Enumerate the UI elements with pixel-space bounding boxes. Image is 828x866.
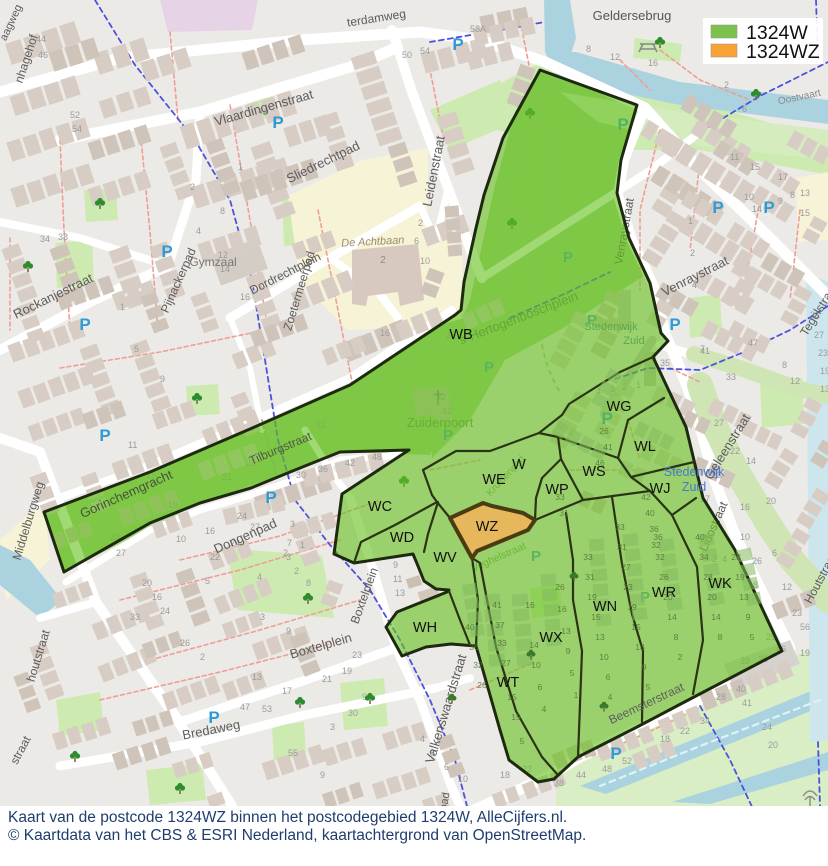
svg-text:27: 27: [501, 658, 511, 668]
svg-text:10: 10: [599, 652, 609, 662]
svg-text:19: 19: [735, 572, 745, 582]
svg-text:2: 2: [724, 80, 729, 90]
svg-text:20: 20: [707, 592, 717, 602]
svg-text:P: P: [712, 198, 723, 217]
svg-text:P: P: [99, 426, 110, 445]
svg-text:28: 28: [716, 692, 726, 702]
svg-text:24: 24: [762, 722, 772, 732]
svg-text:6: 6: [742, 104, 747, 114]
svg-text:7: 7: [287, 538, 292, 548]
svg-text:27: 27: [814, 330, 824, 340]
svg-text:34: 34: [700, 716, 710, 726]
svg-text:9: 9: [393, 560, 398, 570]
svg-text:24: 24: [237, 511, 247, 521]
svg-text:8: 8: [790, 190, 795, 200]
svg-text:13: 13: [800, 188, 810, 198]
svg-text:3: 3: [330, 722, 335, 732]
svg-text:19: 19: [627, 602, 637, 612]
svg-text:54: 54: [72, 124, 82, 134]
svg-text:19: 19: [820, 366, 828, 376]
svg-text:15: 15: [511, 712, 521, 722]
svg-text:2: 2: [380, 255, 386, 266]
svg-text:8: 8: [718, 632, 723, 642]
svg-text:10: 10: [740, 532, 750, 542]
svg-text:30: 30: [296, 470, 306, 480]
svg-text:5: 5: [750, 632, 755, 642]
svg-text:1324WZ: 1324WZ: [746, 41, 820, 63]
svg-text:40: 40: [465, 622, 475, 632]
svg-text:P: P: [669, 315, 680, 334]
svg-text:1: 1: [574, 690, 579, 700]
svg-text:WJ: WJ: [650, 481, 671, 497]
svg-text:13: 13: [820, 384, 828, 394]
svg-text:WZ: WZ: [476, 519, 499, 535]
svg-text:47: 47: [748, 338, 758, 348]
svg-text:Stedenwijk: Stedenwijk: [664, 465, 725, 479]
svg-text:1: 1: [688, 216, 693, 226]
svg-text:P: P: [265, 488, 276, 507]
svg-text:9: 9: [160, 374, 165, 384]
svg-text:15: 15: [750, 162, 760, 172]
svg-text:52: 52: [70, 110, 80, 120]
svg-text:40: 40: [736, 684, 746, 694]
svg-text:26: 26: [555, 582, 565, 592]
svg-text:47: 47: [240, 702, 250, 712]
svg-text:16: 16: [557, 604, 567, 614]
svg-text:31: 31: [617, 542, 627, 552]
svg-text:23: 23: [352, 650, 362, 660]
svg-text:33: 33: [497, 638, 507, 648]
svg-text:13: 13: [595, 632, 605, 642]
svg-text:WE: WE: [482, 472, 506, 488]
svg-text:WX: WX: [539, 630, 563, 646]
svg-text:5: 5: [646, 682, 651, 692]
svg-text:WB: WB: [449, 327, 472, 343]
svg-text:2: 2: [294, 566, 299, 576]
svg-text:22: 22: [680, 726, 690, 736]
svg-text:8: 8: [306, 578, 311, 588]
svg-text:36: 36: [649, 524, 659, 534]
svg-text:40: 40: [695, 532, 705, 542]
svg-text:9: 9: [286, 626, 291, 636]
svg-text:20: 20: [768, 740, 778, 750]
svg-text:P: P: [272, 113, 283, 132]
svg-text:9: 9: [320, 770, 325, 780]
svg-text:5: 5: [205, 576, 210, 586]
svg-text:38: 38: [58, 232, 68, 242]
svg-text:31: 31: [585, 572, 595, 582]
svg-text:9: 9: [746, 612, 751, 622]
svg-text:36: 36: [469, 642, 479, 652]
svg-text:34: 34: [699, 552, 709, 562]
svg-text:14: 14: [752, 204, 762, 214]
svg-text:P: P: [208, 708, 219, 727]
svg-text:2: 2: [678, 652, 683, 662]
svg-text:9: 9: [642, 662, 647, 672]
svg-text:Zuid: Zuid: [682, 480, 706, 494]
svg-text:WS: WS: [582, 464, 605, 480]
svg-text:26: 26: [477, 680, 487, 690]
svg-text:32: 32: [651, 540, 661, 550]
svg-text:P: P: [763, 198, 774, 217]
svg-text:53: 53: [262, 704, 272, 714]
svg-text:17: 17: [778, 172, 788, 182]
svg-text:32: 32: [655, 552, 665, 562]
svg-text:33: 33: [583, 552, 593, 562]
svg-text:13: 13: [739, 592, 749, 602]
svg-text:Gymzaal: Gymzaal: [189, 255, 236, 269]
svg-text:23: 23: [731, 552, 741, 562]
svg-text:© Kaartdata van het CBS & ESRI: © Kaartdata van het CBS & ESRI Nederland…: [8, 827, 586, 844]
svg-text:Kaart van de postcode 1324WZ b: Kaart van de postcode 1324WZ binnen het …: [8, 809, 567, 826]
svg-text:10: 10: [458, 774, 468, 784]
svg-text:16: 16: [205, 526, 215, 536]
svg-text:26: 26: [180, 638, 190, 648]
svg-text:5: 5: [134, 344, 139, 354]
svg-text:WL: WL: [634, 439, 656, 455]
svg-text:16: 16: [380, 328, 390, 338]
svg-text:55: 55: [288, 748, 298, 758]
svg-text:WC: WC: [368, 499, 392, 515]
svg-text:48: 48: [602, 764, 612, 774]
svg-text:21: 21: [322, 674, 332, 684]
svg-text:18: 18: [500, 770, 510, 780]
svg-text:10: 10: [531, 660, 541, 670]
svg-text:33: 33: [726, 372, 736, 382]
svg-text:11: 11: [128, 440, 137, 450]
svg-text:9: 9: [778, 196, 783, 206]
svg-text:30: 30: [348, 708, 358, 718]
svg-text:9: 9: [566, 646, 571, 656]
svg-text:4: 4: [257, 572, 262, 582]
svg-text:13: 13: [635, 642, 645, 652]
svg-text:WN: WN: [593, 599, 617, 615]
svg-text:WV: WV: [433, 550, 457, 566]
svg-text:1: 1: [120, 302, 125, 312]
svg-text:4: 4: [608, 692, 613, 702]
svg-text:40: 40: [645, 508, 655, 518]
svg-text:16: 16: [648, 58, 658, 68]
svg-text:WK: WK: [708, 576, 732, 592]
svg-text:6: 6: [538, 682, 543, 692]
svg-text:4: 4: [196, 226, 201, 236]
svg-text:14: 14: [746, 456, 756, 466]
svg-text:23: 23: [792, 608, 802, 618]
svg-text:33: 33: [130, 612, 140, 622]
svg-text:11: 11: [393, 574, 402, 584]
svg-text:WT: WT: [497, 675, 520, 691]
svg-text:11: 11: [730, 152, 739, 162]
svg-text:4: 4: [420, 734, 425, 744]
svg-text:56: 56: [800, 622, 810, 632]
svg-text:8: 8: [782, 360, 787, 370]
svg-text:16: 16: [525, 600, 535, 610]
svg-text:13: 13: [252, 672, 262, 682]
svg-text:3: 3: [260, 612, 265, 622]
svg-text:1: 1: [300, 540, 305, 550]
svg-text:2: 2: [283, 548, 288, 558]
svg-text:54: 54: [420, 46, 430, 56]
svg-text:8: 8: [674, 632, 679, 642]
svg-text:52: 52: [622, 756, 632, 766]
svg-text:5: 5: [520, 736, 525, 746]
svg-text:46: 46: [38, 50, 48, 60]
svg-text:19: 19: [342, 666, 352, 676]
svg-text:23: 23: [818, 348, 828, 358]
svg-text:6: 6: [414, 236, 419, 246]
svg-text:32: 32: [473, 660, 483, 670]
svg-text:P: P: [452, 35, 463, 54]
svg-text:20: 20: [766, 496, 776, 506]
svg-text:15: 15: [631, 622, 641, 632]
svg-text:17: 17: [282, 686, 292, 696]
svg-text:41: 41: [742, 698, 752, 708]
svg-text:8: 8: [586, 44, 591, 54]
svg-text:24: 24: [160, 606, 170, 616]
svg-text:41: 41: [492, 600, 502, 610]
svg-text:23: 23: [623, 582, 633, 592]
svg-text:41: 41: [700, 346, 710, 356]
svg-text:42: 42: [345, 458, 355, 468]
svg-text:15: 15: [800, 208, 810, 218]
svg-text:WD: WD: [390, 530, 414, 546]
svg-text:WP: WP: [545, 482, 568, 498]
svg-text:Geldersebrug: Geldersebrug: [593, 8, 672, 23]
svg-text:6: 6: [444, 762, 449, 772]
svg-text:P: P: [161, 242, 172, 261]
svg-text:WH: WH: [413, 620, 437, 636]
svg-text:2: 2: [690, 248, 695, 258]
svg-text:19: 19: [800, 648, 810, 658]
svg-text:16: 16: [740, 502, 750, 512]
svg-text:14: 14: [529, 640, 539, 650]
svg-text:14: 14: [667, 612, 677, 622]
svg-text:27: 27: [714, 418, 724, 428]
svg-text:13: 13: [395, 588, 405, 598]
svg-text:2: 2: [190, 182, 195, 192]
svg-text:WG: WG: [607, 399, 632, 415]
svg-text:W: W: [512, 457, 526, 473]
svg-text:35: 35: [660, 358, 670, 368]
svg-text:26: 26: [599, 426, 609, 436]
svg-text:34: 34: [40, 234, 50, 244]
svg-text:P: P: [610, 744, 621, 763]
svg-text:4: 4: [542, 704, 547, 714]
svg-text:16: 16: [240, 292, 250, 302]
svg-text:3: 3: [290, 519, 295, 529]
svg-text:31: 31: [559, 508, 569, 518]
svg-text:26: 26: [659, 572, 669, 582]
svg-text:14: 14: [711, 612, 721, 622]
svg-text:6: 6: [772, 548, 777, 558]
svg-text:2: 2: [418, 218, 423, 228]
svg-text:5: 5: [570, 668, 575, 678]
svg-text:12: 12: [790, 376, 800, 386]
svg-text:33: 33: [615, 522, 625, 532]
svg-text:P: P: [79, 315, 90, 334]
svg-text:44: 44: [576, 770, 586, 780]
svg-text:50: 50: [402, 50, 412, 60]
svg-text:12: 12: [782, 582, 792, 592]
svg-text:10: 10: [744, 192, 754, 202]
svg-text:8: 8: [220, 206, 225, 216]
svg-text:37: 37: [495, 620, 505, 630]
svg-text:13: 13: [561, 626, 571, 636]
svg-text:WR: WR: [652, 585, 676, 601]
svg-text:10: 10: [176, 534, 186, 544]
svg-text:58A: 58A: [470, 24, 486, 34]
svg-text:2: 2: [200, 652, 205, 662]
svg-text:48: 48: [372, 452, 382, 462]
svg-text:20: 20: [142, 578, 152, 588]
svg-text:15: 15: [507, 692, 517, 702]
svg-text:18: 18: [660, 734, 670, 744]
svg-text:12: 12: [610, 52, 620, 62]
svg-text:6: 6: [606, 672, 611, 682]
svg-text:10: 10: [420, 256, 430, 266]
svg-text:27: 27: [116, 548, 126, 558]
svg-text:1: 1: [238, 162, 243, 172]
svg-text:41: 41: [603, 442, 613, 452]
svg-text:36: 36: [318, 464, 328, 474]
svg-text:16: 16: [152, 592, 162, 602]
svg-text:27: 27: [621, 562, 631, 572]
